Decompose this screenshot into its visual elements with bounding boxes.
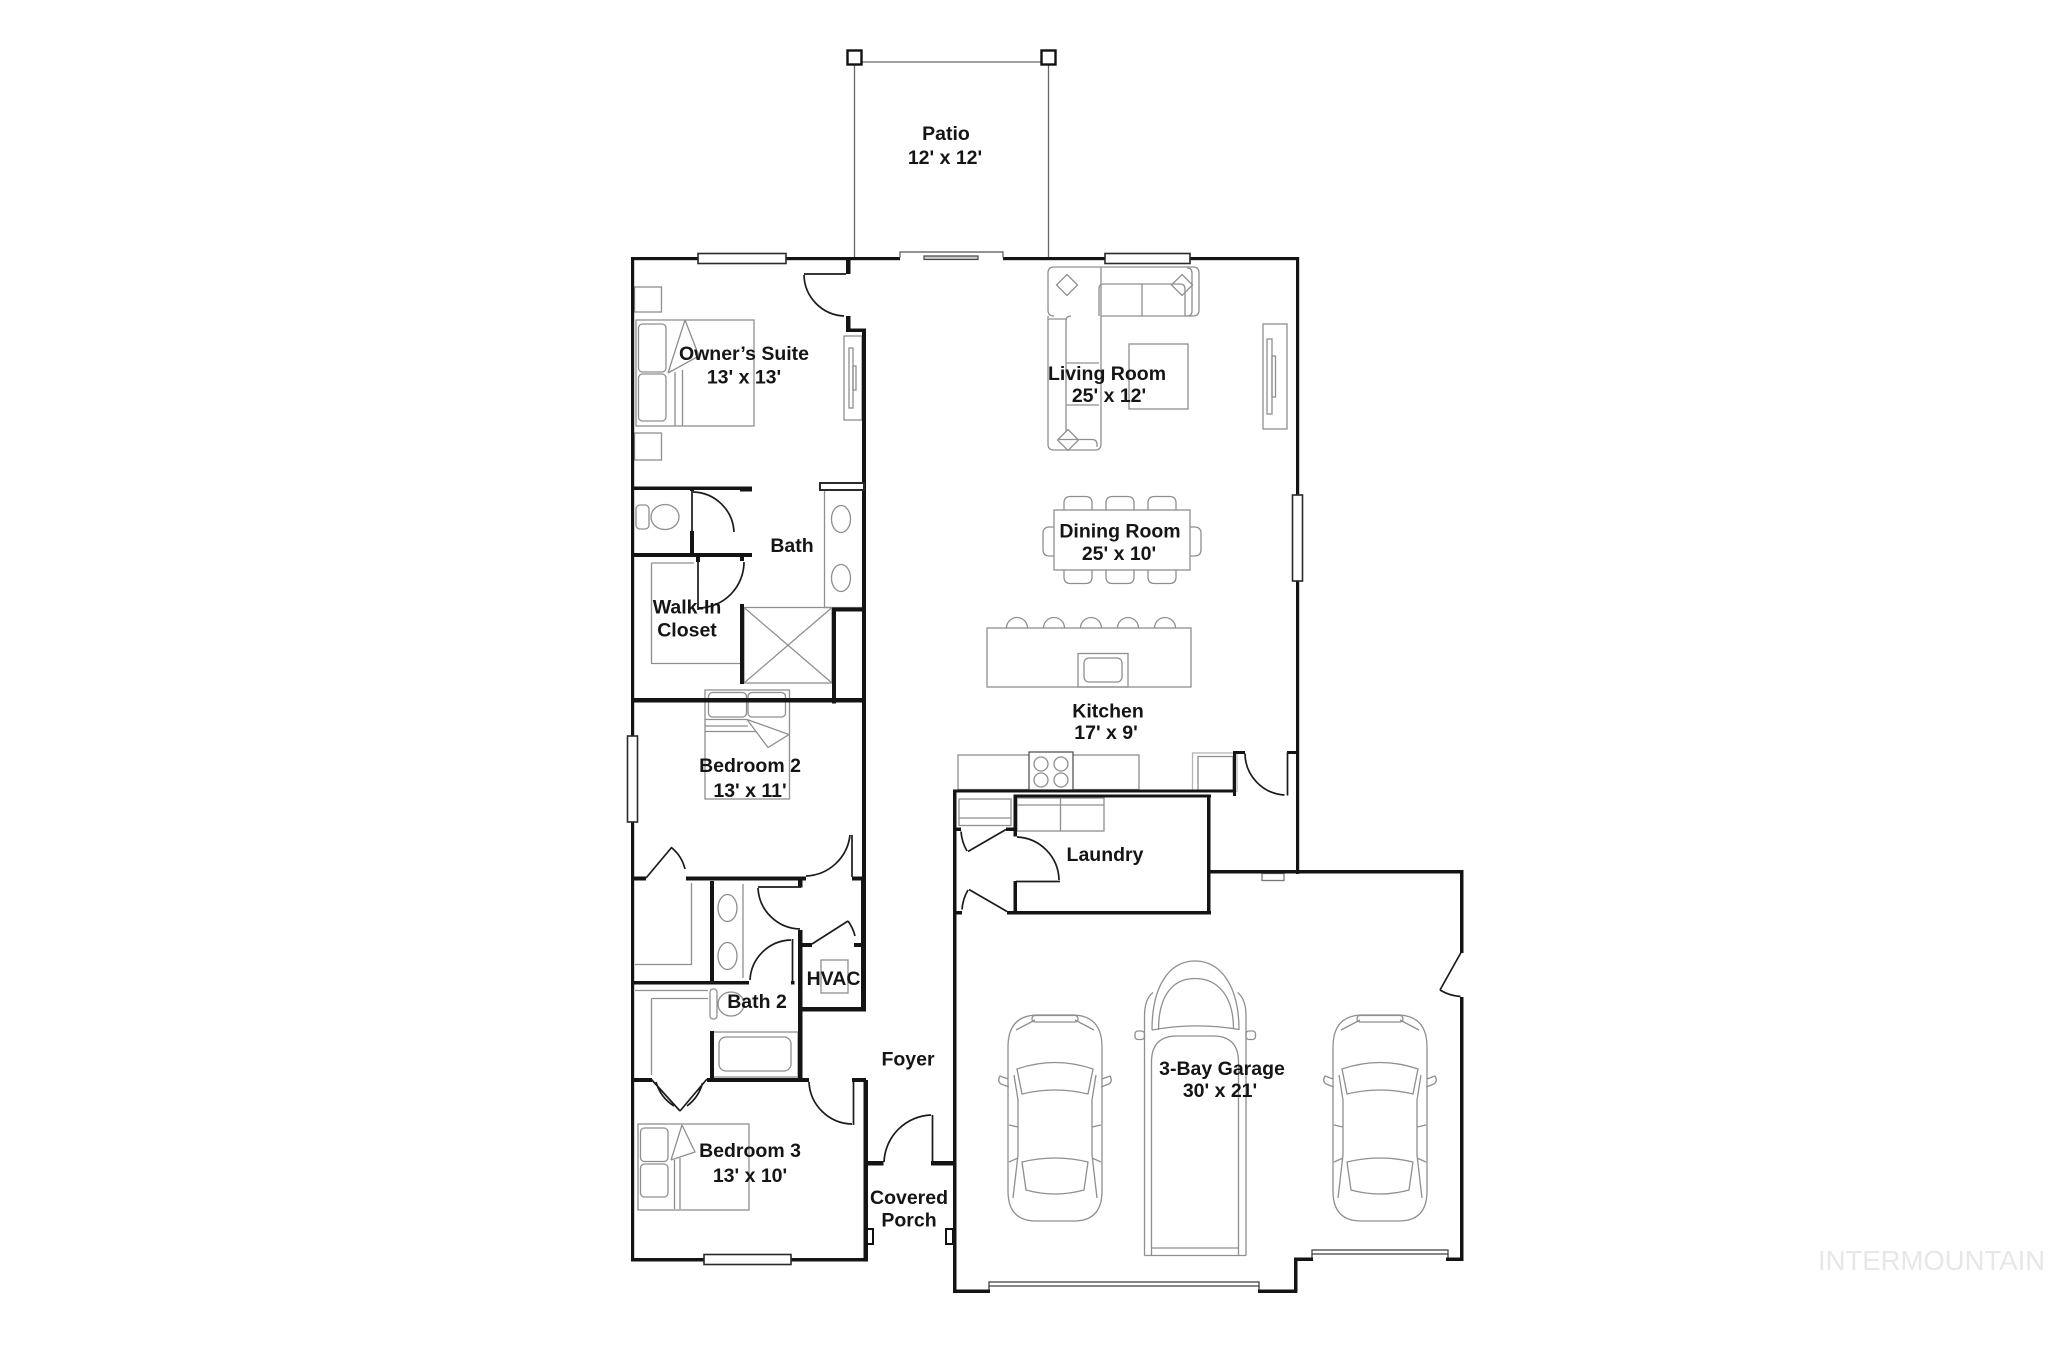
svg-text:13' x 13': 13' x 13' <box>707 367 781 389</box>
svg-text:Walk-In: Walk-In <box>653 597 722 619</box>
svg-text:Closet: Closet <box>657 620 717 642</box>
svg-text:Dining Room: Dining Room <box>1059 521 1180 543</box>
svg-text:Porch: Porch <box>881 1210 936 1232</box>
svg-text:Bath 2: Bath 2 <box>727 991 787 1013</box>
svg-text:Bath: Bath <box>770 535 813 557</box>
svg-text:13' x 10': 13' x 10' <box>713 1165 787 1187</box>
svg-text:Living Room: Living Room <box>1048 363 1166 385</box>
svg-text:Foyer: Foyer <box>881 1049 935 1071</box>
svg-text:Bedroom 2: Bedroom 2 <box>699 755 801 777</box>
svg-text:25' x 12': 25' x 12' <box>1072 385 1146 407</box>
svg-text:25' x 10': 25' x 10' <box>1082 543 1156 565</box>
svg-text:Patio: Patio <box>922 123 970 145</box>
svg-text:13' x 11': 13' x 11' <box>713 780 786 802</box>
svg-text:12' x 12': 12' x 12' <box>908 147 982 169</box>
svg-text:Bedroom 3: Bedroom 3 <box>699 1140 801 1162</box>
svg-text:17' x 9': 17' x 9' <box>1074 722 1138 744</box>
svg-text:INTERMOUNTAIN: INTERMOUNTAIN <box>1818 1245 2045 1276</box>
svg-text:HVAC: HVAC <box>807 968 861 990</box>
svg-text:Kitchen: Kitchen <box>1072 701 1144 723</box>
svg-text:Covered: Covered <box>870 1187 948 1209</box>
svg-text:3-Bay Garage: 3-Bay Garage <box>1159 1058 1285 1080</box>
svg-text:Laundry: Laundry <box>1067 844 1144 866</box>
svg-text:Owner’s Suite: Owner’s Suite <box>679 343 809 365</box>
svg-text:30' x 21': 30' x 21' <box>1183 1080 1257 1102</box>
